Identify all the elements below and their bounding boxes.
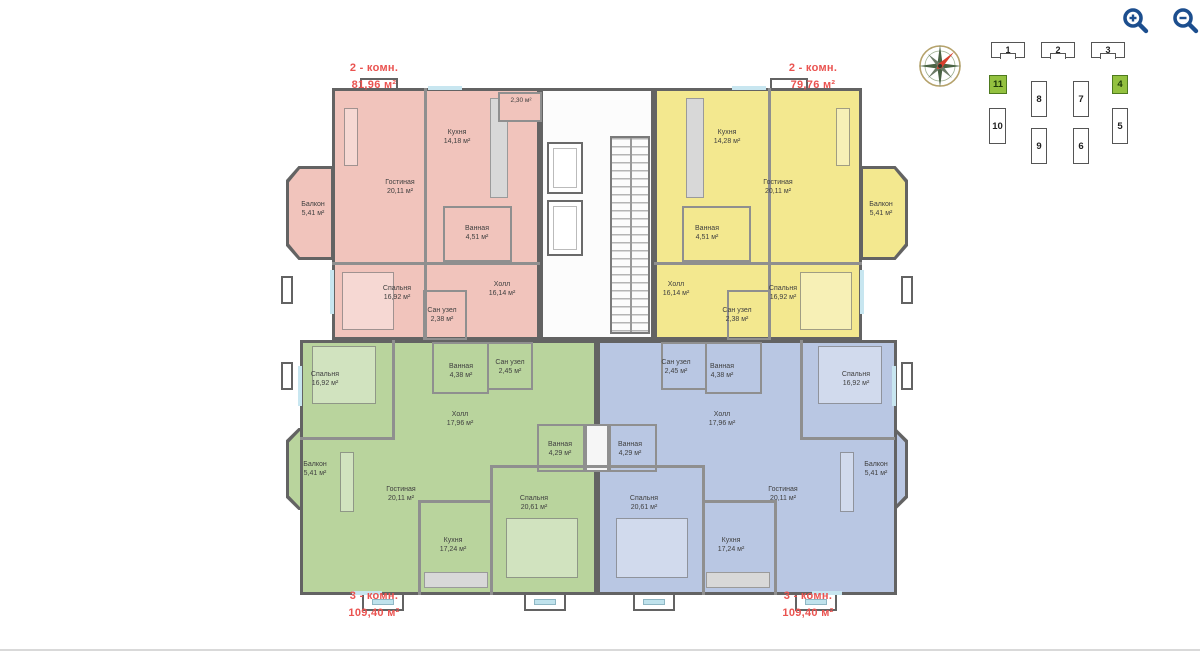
- room-label: Гостиная20,11 м²: [386, 485, 415, 503]
- entrance-porch: [524, 593, 566, 611]
- room-label: Ванная4,29 м²: [548, 440, 572, 458]
- window: [892, 366, 896, 406]
- facade-bump: [281, 362, 293, 390]
- zoom-in-button[interactable]: [1121, 6, 1149, 34]
- room-label: Кухня17,24 м²: [440, 536, 467, 554]
- facade-bump: [901, 276, 913, 304]
- wall: [418, 500, 421, 595]
- magnifier-minus-icon: [1171, 6, 1199, 34]
- room-label: Сан узел2,45 м²: [495, 358, 524, 376]
- unit-cell-8[interactable]: 8: [1031, 81, 1047, 117]
- room-label: Балкон5,41 м²: [869, 200, 892, 218]
- apartment-label-top-right: 2 - комн.79,76 м²: [789, 60, 837, 93]
- staircase: [610, 136, 650, 334]
- wall: [703, 500, 777, 503]
- unit-cell-11[interactable]: 11: [989, 75, 1007, 94]
- kitchen-fixtures: [424, 572, 488, 588]
- room-label: Кухня14,28 м²: [714, 128, 741, 146]
- room-label: Сан узел2,45 м²: [661, 358, 690, 376]
- zoom-out-button[interactable]: [1171, 6, 1199, 34]
- wall: [800, 340, 803, 437]
- unit-cell-10[interactable]: 10: [989, 108, 1006, 144]
- window: [298, 366, 302, 406]
- wall: [418, 500, 492, 503]
- unit-cell-6[interactable]: 6: [1073, 128, 1089, 164]
- floor-cell-2[interactable]: 2: [1041, 42, 1075, 58]
- wall: [774, 500, 777, 595]
- unit-cell-5[interactable]: 5: [1112, 108, 1128, 144]
- wall: [392, 340, 395, 437]
- furniture: [506, 518, 578, 578]
- floor-cell-3[interactable]: 3: [1091, 42, 1125, 58]
- apartment-label-top-left: 2 - комн.81,96 м²: [350, 60, 398, 93]
- room-label: Балкон5,41 м²: [303, 460, 326, 478]
- furniture: [840, 452, 854, 512]
- wall: [490, 465, 597, 468]
- room-label: Ванная4,38 м²: [710, 362, 734, 380]
- kitchen-fixtures: [686, 98, 704, 198]
- facade-bump: [901, 362, 913, 390]
- room-label: Ванная4,51 м²: [695, 224, 719, 242]
- wall: [702, 465, 705, 595]
- storage-area-label: 2,30 м²: [510, 97, 531, 104]
- unit-cell-4[interactable]: 4: [1112, 75, 1128, 94]
- magnifier-plus-icon: [1121, 6, 1149, 34]
- room-label: Холл16,14 м²: [489, 280, 516, 298]
- floor-cell-1[interactable]: 1: [991, 42, 1025, 58]
- room-label: Сан узел2,38 м²: [722, 306, 751, 324]
- kitchen-fixtures: [706, 572, 770, 588]
- wall: [300, 437, 395, 440]
- room-label: Ванная4,38 м²: [449, 362, 473, 380]
- floor-plan-viewer: Кухня14,18 м² Гостиная20,11 м² Балкон5,4…: [0, 0, 1200, 652]
- entrance-porch: [633, 593, 675, 611]
- wall: [597, 465, 704, 468]
- wall: [654, 262, 862, 265]
- room-label: Спальня20,61 м²: [630, 494, 658, 512]
- furniture: [836, 108, 850, 166]
- room-label: Спальня16,92 м²: [769, 284, 797, 302]
- window: [860, 270, 864, 314]
- furniture: [800, 272, 852, 330]
- room-label: Балкон5,41 м²: [301, 200, 324, 218]
- facade-bump: [281, 276, 293, 304]
- window: [428, 86, 462, 90]
- room-label: Гостиная20,11 м²: [768, 485, 797, 503]
- apartment-label-bottom-right: 3 - комн.109,40 м²: [782, 588, 833, 621]
- furniture: [344, 108, 358, 166]
- room-label: Холл17,96 м²: [709, 410, 736, 428]
- unit-cell-7[interactable]: 7: [1073, 81, 1089, 117]
- furniture: [340, 452, 354, 512]
- room-label: Гостиная20,11 м²: [385, 178, 414, 196]
- room-label: Спальня16,92 м²: [842, 370, 870, 388]
- room-label: Кухня17,24 м²: [718, 536, 745, 554]
- furniture: [616, 518, 688, 578]
- wall: [332, 262, 540, 265]
- room-label: Спальня16,92 м²: [311, 370, 339, 388]
- window: [330, 270, 334, 314]
- window: [732, 86, 766, 90]
- room-label: Гостиная20,11 м²: [763, 178, 792, 196]
- elevator-shaft: [547, 142, 583, 194]
- compass-icon: [916, 42, 964, 90]
- room-label: Спальня16,92 м²: [383, 284, 411, 302]
- room-label: Балкон5,41 м²: [864, 460, 887, 478]
- unit-cell-9[interactable]: 9: [1031, 128, 1047, 164]
- room-label: Спальня20,61 м²: [520, 494, 548, 512]
- wall: [490, 465, 493, 595]
- room-label: Сан узел2,38 м²: [427, 306, 456, 324]
- apartment-label-bottom-left: 3 - комн.109,40 м²: [348, 588, 399, 621]
- room-label: Ванная4,51 м²: [465, 224, 489, 242]
- page-bottom-divider: [0, 649, 1200, 651]
- elevator-shaft: [547, 200, 583, 256]
- room-label: Ванная4,29 м²: [618, 440, 642, 458]
- wall: [800, 437, 895, 440]
- room-label: Кухня14,18 м²: [444, 128, 471, 146]
- room-label: Холл17,96 м²: [447, 410, 474, 428]
- room-label: Холл16,14 м²: [663, 280, 690, 298]
